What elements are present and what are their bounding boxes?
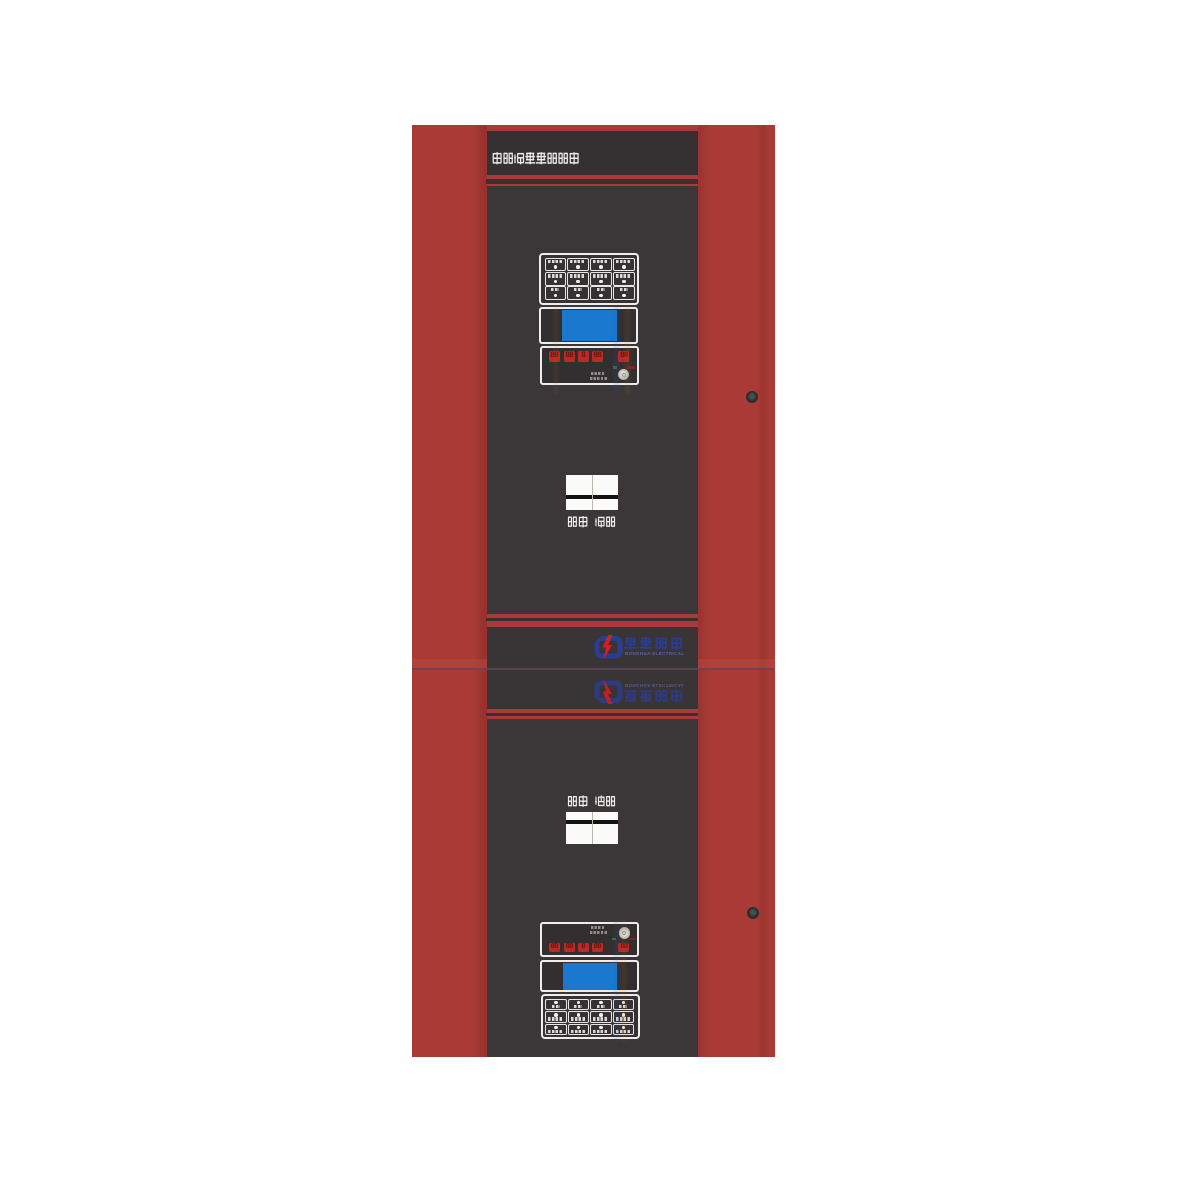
svg-text:BONGHUA ELECTRICAL: BONGHUA ELECTRICAL (625, 651, 684, 656)
svg-text:BONGHUA ELECTRICAL: BONGHUA ELECTRICAL (625, 683, 684, 688)
